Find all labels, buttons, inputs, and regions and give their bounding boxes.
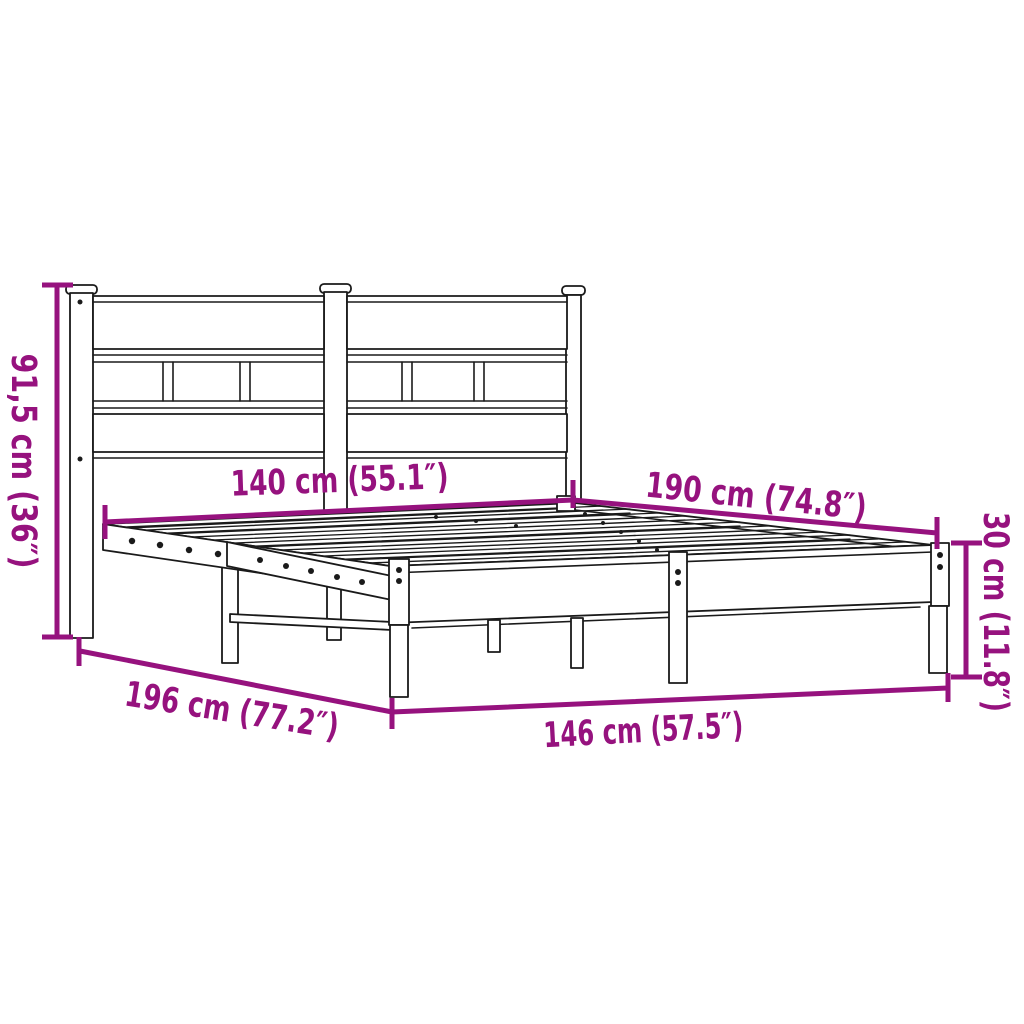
product-dimension-diagram: 91,5 cm (36″) 140 cm (55.1″) 190 cm (74.…: [0, 0, 1024, 1024]
front-left-leg: [389, 559, 409, 697]
dimension-label-total-width: 146 cm (57.5″): [543, 706, 745, 756]
dimension-label-bed-width: 140 cm (55.1″): [230, 457, 449, 505]
dimension-label-frame-height: 30 cm (11.8″): [975, 512, 1015, 712]
rear-mid-leg-a: [488, 620, 500, 652]
left-stretcher-bar: [230, 614, 392, 630]
front-right-leg: [929, 543, 949, 673]
rear-mid-leg-b: [571, 618, 583, 668]
headboard-rails-left: [93, 296, 324, 458]
bed-frame-diagram-svg: 91,5 cm (36″) 140 cm (55.1″) 190 cm (74.…: [0, 0, 1024, 1024]
headboard-rails-right: [347, 296, 567, 458]
front-center-leg: [669, 552, 687, 683]
dimension-label-headboard-height: 91,5 cm (36″): [3, 354, 43, 569]
dimension-label-total-length: 196 cm (77.2″): [122, 674, 342, 747]
dimension-line-headboard-height: [42, 285, 73, 637]
